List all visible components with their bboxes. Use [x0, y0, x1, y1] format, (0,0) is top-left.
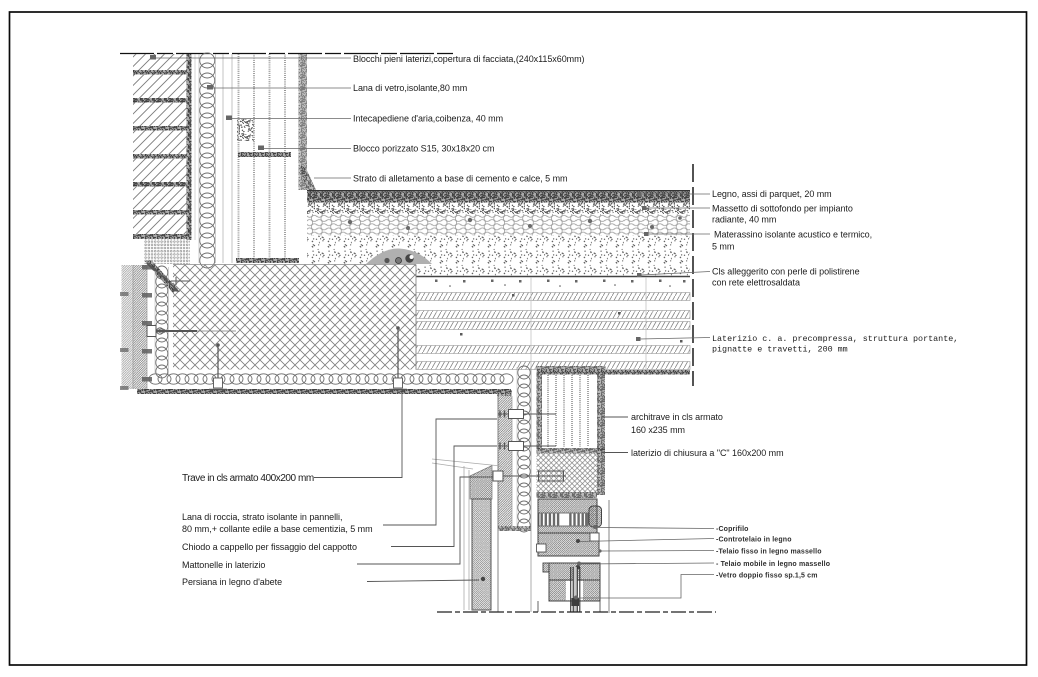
- svg-text:Legno, assi di parquet, 20 mm: Legno, assi di parquet, 20 mm: [712, 189, 832, 199]
- svg-text:-Controtelaio in legno: -Controtelaio in legno: [716, 537, 792, 544]
- svg-text:Strato di alletamento a base d: Strato di alletamento a base di cemento …: [353, 174, 567, 184]
- svg-text:con rete elettrosaldata: con rete elettrosaldata: [712, 278, 800, 288]
- svg-text:-Vetro doppio fisso sp.1,5 cm: -Vetro doppio fisso sp.1,5 cm: [716, 573, 818, 580]
- svg-text:5 mm: 5 mm: [712, 242, 734, 252]
- svg-text:Cls alleggerito con perle di p: Cls alleggerito con perle di polistirene: [712, 267, 860, 277]
- svg-text:Lana di vetro,isolante,80 mm: Lana di vetro,isolante,80 mm: [353, 83, 467, 93]
- svg-text:-Telaio fisso in legno massell: -Telaio fisso in legno massello: [716, 549, 822, 556]
- svg-text:Mattonelle in laterizio: Mattonelle in laterizio: [182, 560, 265, 570]
- svg-text:80 mm,+ collante edile a base: 80 mm,+ collante edile a base cementizia…: [182, 524, 373, 534]
- svg-text:pignatte e travetti, 200 mm: pignatte e travetti, 200 mm: [712, 345, 848, 355]
- svg-text:Persiana in legno d'abete: Persiana in legno d'abete: [182, 577, 282, 587]
- svg-text:Laterizio c. a. precompressa,: Laterizio c. a. precompressa, struttura …: [712, 334, 958, 344]
- svg-text:Blocchi pieni laterizi,copertu: Blocchi pieni laterizi,copertura di facc…: [353, 54, 585, 64]
- svg-text:Blocco porizzato S15, 30x18x20: Blocco porizzato S15, 30x18x20 cm: [353, 144, 494, 154]
- svg-text:radiante, 40 mm: radiante, 40 mm: [712, 215, 776, 225]
- svg-text:-Coprifilo: -Coprifilo: [716, 526, 749, 533]
- svg-text:Lana di roccia, strato isolant: Lana di roccia, strato isolante in panne…: [182, 512, 342, 522]
- svg-text:Chiodo a cappello per fissaggi: Chiodo a cappello per fissaggio del capp…: [182, 542, 357, 552]
- svg-text:architrave in cls armato: architrave in cls armato: [631, 412, 723, 422]
- svg-text:Massetto di sottofondo per imp: Massetto di sottofondo per impianto: [712, 204, 853, 214]
- svg-text:- Telaio mobile in legno masse: - Telaio mobile in legno massello: [716, 561, 830, 568]
- svg-text:160 x235 mm: 160 x235 mm: [631, 425, 685, 435]
- svg-text:Materassino isolante acustico: Materassino isolante acustico e termico,: [714, 230, 872, 240]
- svg-text:Trave in cls armato 400x200 mm: Trave in cls armato 400x200 mm: [182, 473, 314, 484]
- svg-text:Intecapediene d'aria,coibenza,: Intecapediene d'aria,coibenza, 40 mm: [353, 114, 503, 124]
- svg-text:laterizio di chiusura a "C" 16: laterizio di chiusura a "C" 160x200 mm: [631, 448, 784, 458]
